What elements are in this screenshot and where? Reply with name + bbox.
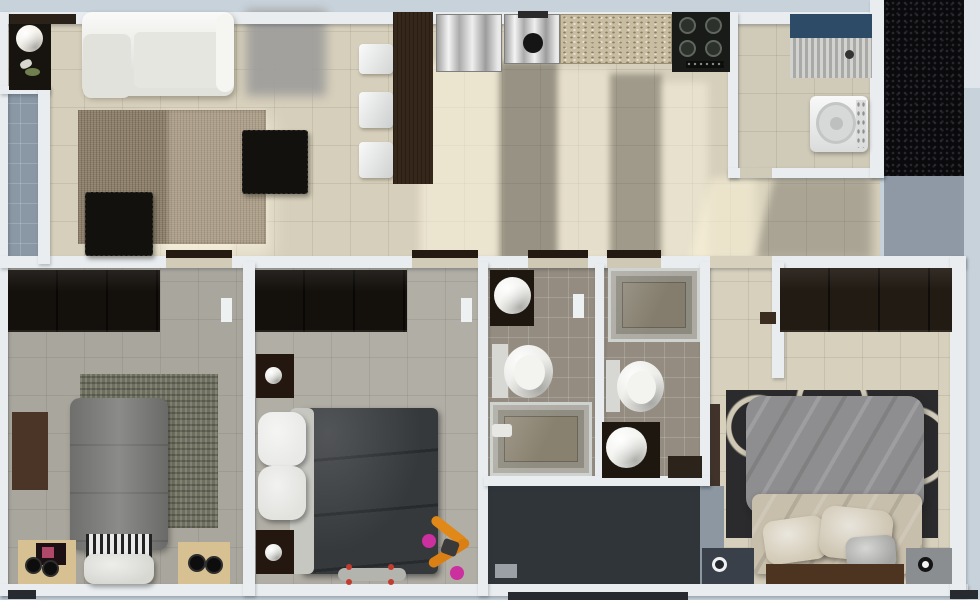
- headphones-right-2: [205, 556, 223, 574]
- table-decor-dish: [25, 68, 40, 76]
- bed1-duvet: [70, 398, 168, 550]
- headphones-left-1: [25, 557, 42, 574]
- knob-master-left: [712, 557, 727, 572]
- stove-burner-3: [679, 40, 696, 57]
- bed1-pillow: [84, 554, 154, 584]
- hall-shadow-band-2: [610, 74, 662, 260]
- laundry-counter-front: [790, 38, 872, 78]
- ottoman-dark-1: [242, 130, 308, 194]
- window-sill-bottom-3: [950, 590, 978, 599]
- wall-master-right: [950, 256, 966, 596]
- bath1-sink: [494, 277, 531, 314]
- skateboard-wheel-1: [346, 564, 352, 570]
- window-sill-bottom-1: [8, 590, 36, 599]
- bath2-toilet-seat: [627, 371, 656, 404]
- knob-master-right: [918, 557, 933, 572]
- dresser-master: [780, 268, 952, 332]
- lamp-bed2-top: [265, 367, 282, 384]
- laundry-counter-knob: [845, 50, 854, 59]
- laundry-counter-top: [790, 14, 872, 38]
- washer-control-panel: [856, 100, 866, 148]
- sink-faucet-handles: [518, 11, 548, 18]
- bath2-wall-shelf: [668, 456, 702, 478]
- kitchen-counter: [560, 14, 672, 64]
- stove-burner-1: [679, 17, 696, 34]
- door-lintel-bathroom-1: [528, 250, 588, 258]
- wall-laundry-right: [870, 0, 884, 178]
- dining-chair-1: [359, 44, 393, 74]
- bedroom1-desk: [12, 412, 48, 490]
- granite-void: [884, 0, 964, 176]
- bed2-duvet: [300, 408, 438, 574]
- door-lintel-bedroom-2: [412, 250, 478, 258]
- bath2-shower: [608, 268, 700, 342]
- wardrobe-bedroom-1: [8, 270, 160, 332]
- table-lamp-sphere: [16, 25, 43, 52]
- dining-table: [393, 12, 433, 184]
- door-leaf-bedroom-1: [221, 298, 232, 322]
- wall-bedroom1-bedroom2: [243, 262, 255, 596]
- door-leaf-bathroom-1: [573, 294, 584, 318]
- washer-drum-center: [830, 117, 843, 130]
- sofa-arm-right: [216, 14, 234, 92]
- patio-dark-floor: [488, 486, 700, 586]
- wall-bedroom2-bath: [478, 262, 488, 596]
- toy-scooter-wheel-2: [450, 566, 464, 580]
- doorway-master-hall: [710, 256, 772, 268]
- skateboard-wheel-3: [346, 579, 352, 585]
- wardrobe-bedroom-2: [255, 270, 407, 332]
- sink-faucet: [523, 33, 543, 53]
- skateboard-wheel-2: [388, 564, 394, 570]
- exterior-gray-ledge: [884, 176, 964, 258]
- nightstand-photo-pink: [42, 547, 54, 558]
- door-frame-master: [760, 312, 776, 324]
- fridge: [436, 14, 502, 72]
- sofa-chaise: [83, 34, 131, 98]
- window-sill-top-left: [10, 14, 76, 24]
- nightstand-master-left: [702, 548, 754, 584]
- door-leaf-bedroom-2: [461, 298, 472, 322]
- door-lintel-bathroom-2: [607, 250, 661, 258]
- headphones-left-2: [42, 560, 59, 577]
- stove-knobs: [686, 61, 724, 68]
- lamp-bed2-bottom: [265, 544, 282, 561]
- bath1-shower: [490, 402, 592, 476]
- hall-shadow-band-3: [756, 176, 872, 260]
- wall-balcony-right: [38, 86, 50, 264]
- headphones-right-1: [188, 554, 206, 572]
- hall-light-beam-2: [558, 68, 610, 260]
- stove-burner-2: [705, 17, 722, 34]
- skateboard-wheel-4: [388, 579, 394, 585]
- wall-right-stub-top: [964, 0, 980, 88]
- sofa-seat: [134, 32, 224, 88]
- ottoman-dark-2: [85, 192, 153, 256]
- dining-chair-3: [359, 142, 393, 178]
- patio-step: [495, 564, 517, 578]
- bed2-pillow-1: [258, 412, 306, 466]
- bath2-sink: [606, 427, 647, 468]
- bed2-pillow-2: [258, 466, 306, 520]
- bed-master-headboard: [766, 564, 904, 584]
- stove-burner-4: [705, 40, 722, 57]
- wall-left: [0, 12, 8, 596]
- hall-shadow-band-1: [500, 62, 558, 260]
- doorway-laundry: [740, 168, 772, 178]
- door-lintel-bedroom-1: [166, 250, 232, 258]
- window-sill-bottom-2: [508, 592, 688, 600]
- toy-scooter-wheel-1: [422, 534, 436, 548]
- bath1-shower-head: [492, 424, 512, 437]
- wall-bath-hallway: [700, 262, 710, 486]
- dining-chair-2: [359, 92, 393, 128]
- floor-plan-scene: [0, 0, 980, 600]
- bath1-toilet-seat: [514, 355, 545, 390]
